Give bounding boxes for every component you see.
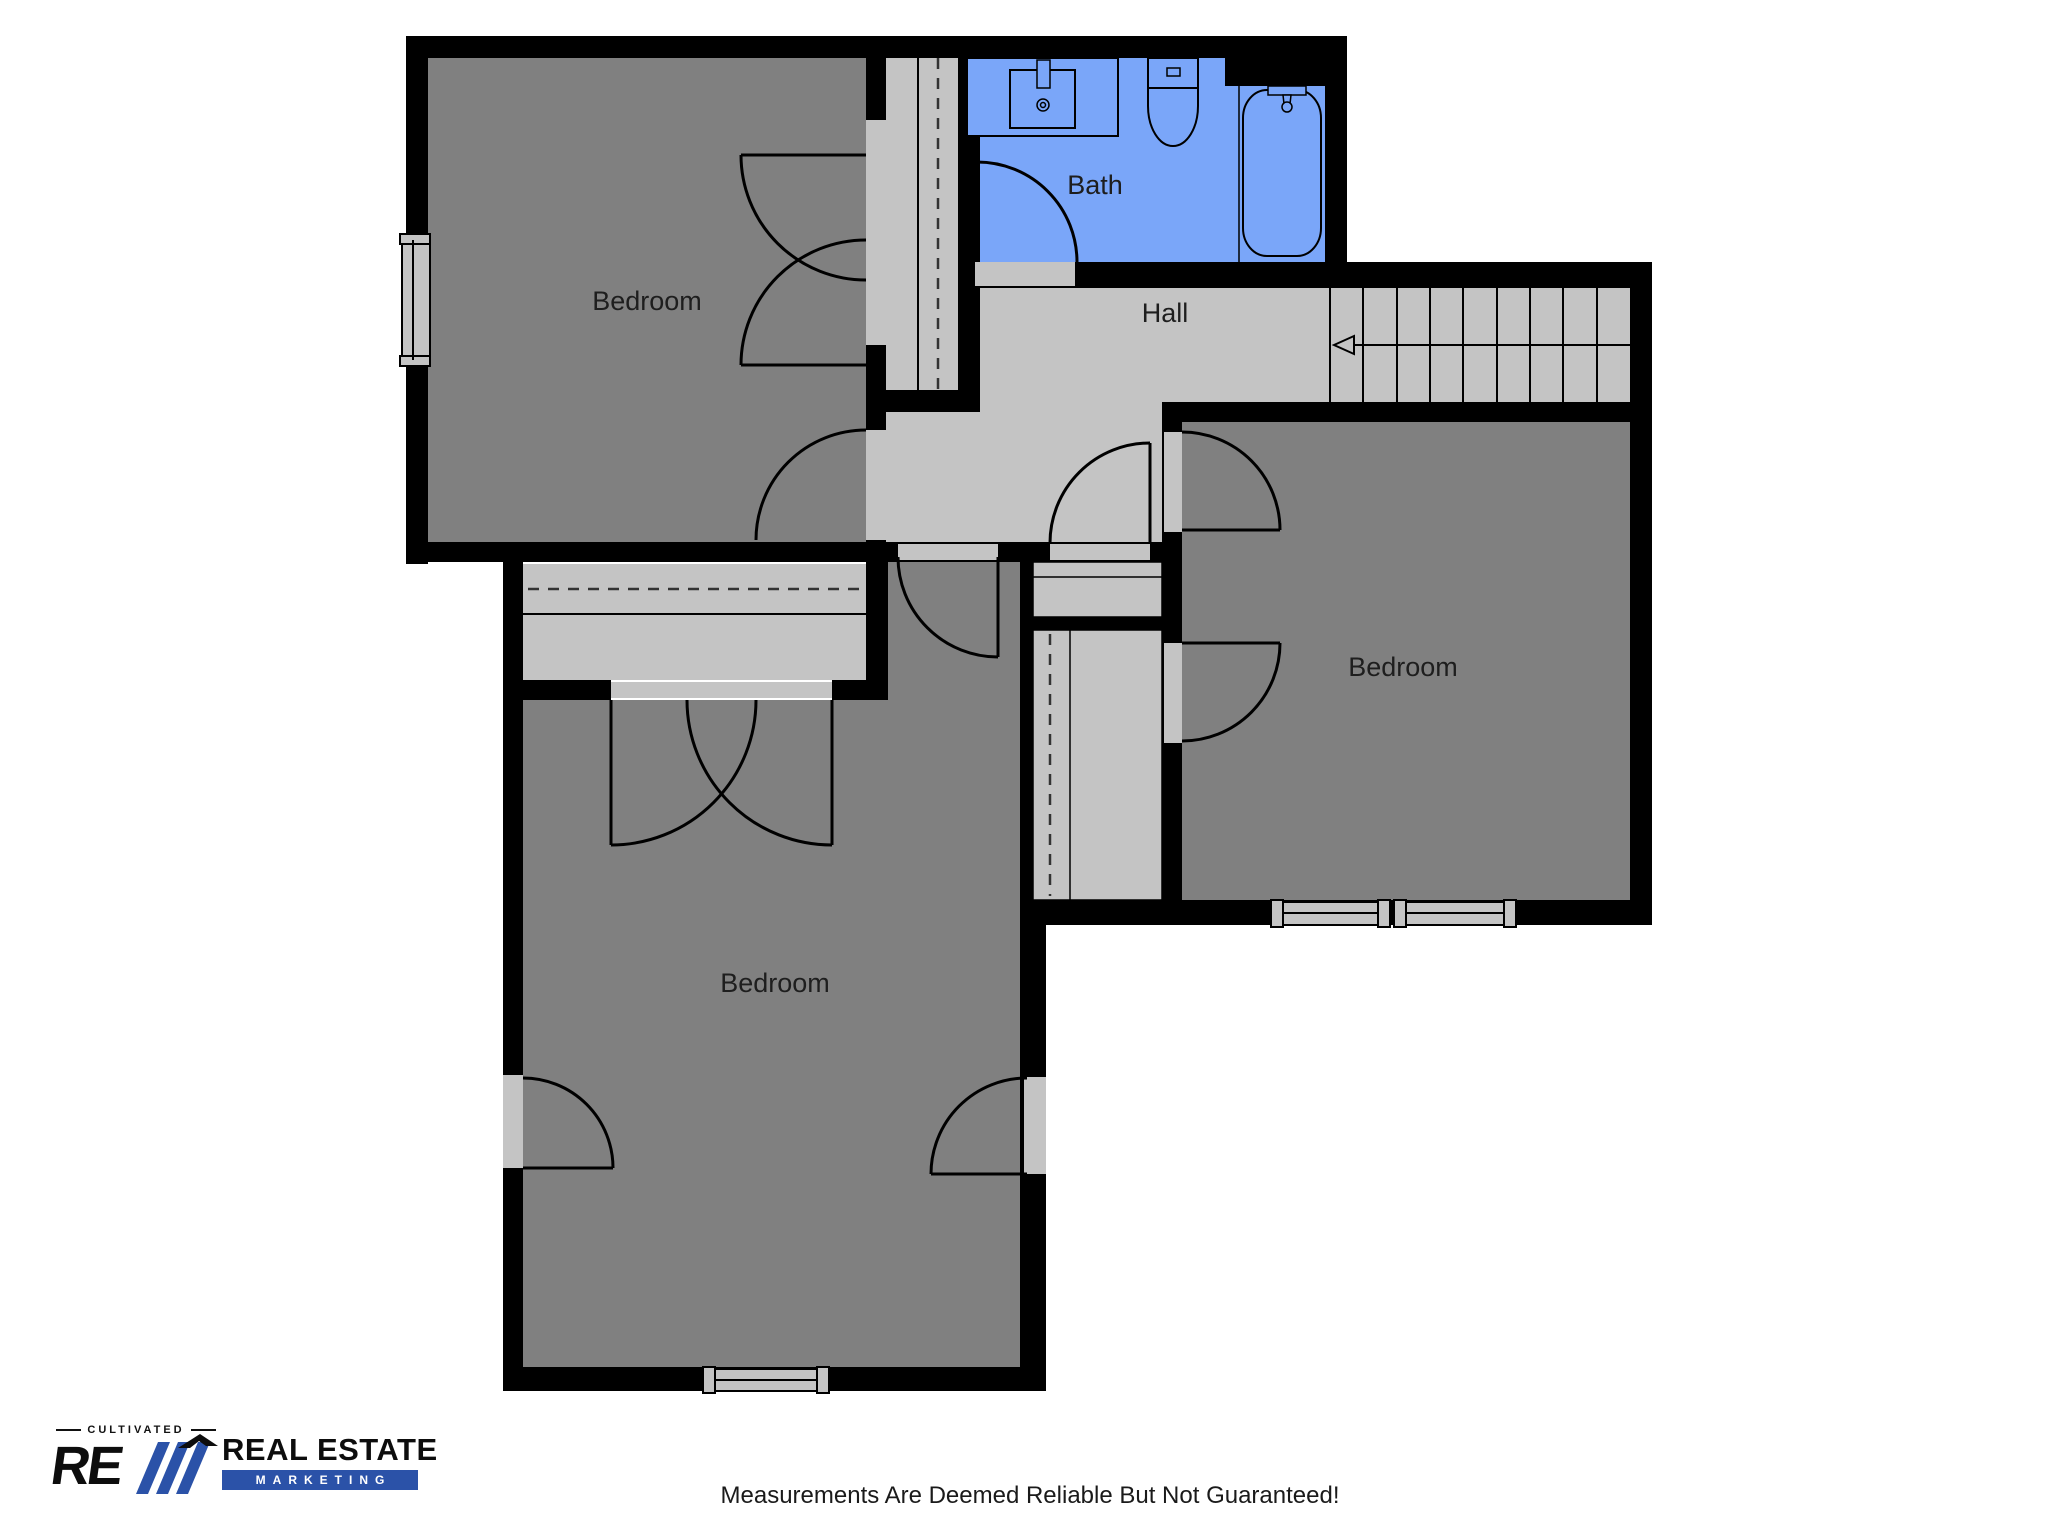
wall-bath-right	[1325, 36, 1347, 276]
wall-closet-top-bottom	[878, 390, 980, 412]
room-label-bedroom-right: Bedroom	[1348, 652, 1458, 682]
room-label-hall: Hall	[1142, 298, 1189, 328]
window-bedroom-right-2	[1394, 900, 1516, 927]
logo-line2: MARKETING	[222, 1470, 418, 1490]
window-bedroom-bl-bottom	[703, 1367, 829, 1393]
opening-hall-closet	[1050, 544, 1150, 560]
opening-bedroom-right-2	[1164, 643, 1182, 743]
wall-closet-mid-divider	[1033, 617, 1162, 630]
bathtub-icon	[1239, 86, 1321, 262]
logo-wordmark: REAL ESTATE MARKETING	[222, 1432, 418, 1490]
logo-monogram-letters: RE	[48, 1436, 126, 1496]
opening-bedroom1-double	[866, 120, 886, 345]
room-label-bedroom-top-left: Bedroom	[592, 286, 702, 316]
wall-bedroom-right-top	[1162, 402, 1652, 422]
room-label-bedroom-bottom-left: Bedroom	[720, 968, 830, 998]
room-label-bath: Bath	[1067, 170, 1123, 200]
sink-vanity-icon	[967, 58, 1118, 136]
closet-bottom-left-bedroom	[523, 564, 866, 680]
logo-line1: REAL ESTATE	[222, 1432, 418, 1468]
opening-bath	[975, 262, 1075, 286]
floorplan-drawing: Bedroom Bath Hall Bedroom Bedroom	[0, 0, 2048, 1536]
opening-bedroom-bl-left	[503, 1075, 523, 1168]
floorplan-page: Bedroom Bath Hall Bedroom Bedroom CULTIV…	[0, 0, 2048, 1536]
opening-closet-double	[611, 682, 832, 698]
wall-closet-door-right	[832, 680, 888, 700]
closet-linen	[1033, 562, 1162, 617]
wall-right	[1630, 262, 1652, 925]
room-floor-bedroom-bottom-left-arm	[888, 562, 1024, 722]
rem-logo-monogram: RE	[48, 1434, 218, 1496]
opening-bedroom1-single	[866, 430, 886, 540]
company-logo: CULTIVATED RE REAL ESTATE MARKETING	[48, 1420, 428, 1500]
opening-bedroom-bl-right	[1024, 1077, 1046, 1174]
wall-bedroom-bl-left	[503, 562, 523, 1391]
logo-rule-right	[191, 1429, 216, 1431]
wall-closet-mid-left	[1020, 562, 1033, 900]
window-bedroom-right-1	[1271, 900, 1390, 927]
closet-top-middle	[886, 58, 958, 390]
opening-hall-to-bedroom-bl	[898, 544, 998, 560]
logo-rule-left	[56, 1429, 81, 1431]
wall-closet-door-left	[523, 680, 611, 700]
room-floor-bedroom-bottom-left	[523, 700, 1024, 1367]
wall-arm-left	[866, 562, 888, 700]
window-bedroom1-left	[400, 234, 430, 366]
closet-lower-middle	[1033, 630, 1162, 900]
disclaimer-text: Measurements Are Deemed Reliable But Not…	[700, 1482, 1360, 1510]
toilet-icon	[1148, 58, 1198, 146]
opening-bedroom-right-1	[1164, 432, 1182, 532]
logo-stripes-icon	[136, 1442, 210, 1494]
